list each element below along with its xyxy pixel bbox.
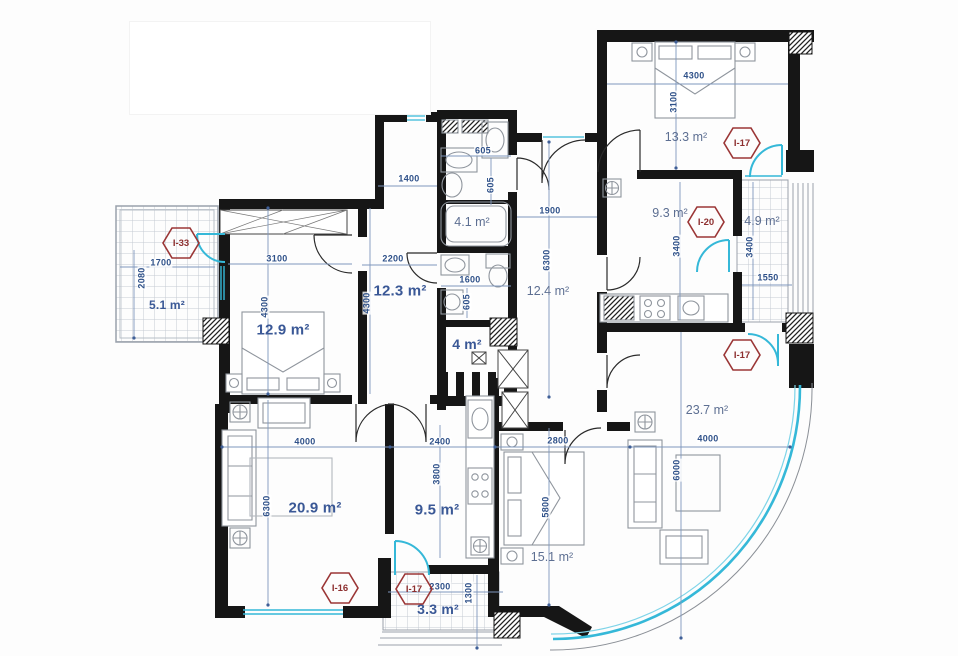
unit-marker: I-17: [722, 126, 762, 160]
room-label-kitchen-left: 9.5 m²: [415, 503, 460, 518]
room-label-bedroom-bottom: 15.1 m²: [531, 551, 573, 564]
dimension-label: 1400: [397, 175, 420, 184]
unit-marker: I-17: [394, 572, 434, 606]
unit-marker: I-20: [686, 205, 726, 239]
dimension-label: 4300: [261, 295, 270, 318]
dimension-label: 3400: [746, 235, 755, 258]
unit-marker: I-33: [161, 226, 201, 260]
room-label-living-right: 23.7 m²: [686, 404, 728, 417]
floor-plan: 5.1 m² 12.9 m² 12.3 m² 4.1 m² 4 m² 12.4 …: [0, 0, 958, 656]
dimension-label: 4300: [682, 72, 705, 81]
dimension-label: 1550: [756, 274, 779, 283]
room-label-storage: 4 m²: [452, 337, 482, 351]
unit-marker-label: I-16: [320, 571, 360, 605]
room-label-bedroom-left: 12.9 m²: [256, 323, 309, 338]
room-label-balcony-right: 4.9 m²: [744, 215, 779, 228]
dimension-label: 3100: [265, 255, 288, 264]
dimension-label: 1900: [538, 207, 561, 216]
unit-marker: I-17: [722, 338, 762, 372]
dimension-label: 6300: [263, 494, 272, 517]
unit-marker-label: I-20: [686, 205, 726, 239]
dimension-label: 5800: [542, 495, 551, 518]
room-label-hallway-right: 12.4 m²: [527, 285, 569, 298]
room-label-bedroom-top-right: 13.3 m²: [665, 131, 707, 144]
dimension-label: 6300: [543, 248, 552, 271]
dimension-label: 4300: [363, 291, 372, 314]
room-label-living-left: 20.9 m²: [288, 501, 341, 516]
dimension-label: 1300: [465, 581, 474, 604]
dimension-label: 2400: [428, 438, 451, 447]
unit-marker: I-16: [320, 571, 360, 605]
furniture-layer: [222, 42, 755, 564]
dimension-label: 1600: [458, 276, 481, 285]
unit-marker-label: I-17: [722, 126, 762, 160]
dimension-label: 2080: [138, 266, 147, 289]
dimension-label: 3400: [673, 234, 682, 257]
watermark-box: [130, 22, 430, 114]
unit-marker-label: I-33: [161, 226, 201, 260]
unit-marker-label: I-17: [722, 338, 762, 372]
room-label-kitchen-right: 9.3 m²: [652, 207, 687, 220]
dimension-label: 2200: [381, 255, 404, 264]
dimension-label: 605: [487, 176, 496, 194]
dimension-label: 2800: [546, 437, 569, 446]
dimension-label: 3800: [433, 462, 442, 485]
dimension-label: 605: [474, 147, 492, 156]
dimension-label: 6000: [673, 458, 682, 481]
dimension-label: 605: [463, 293, 472, 311]
unit-marker-label: I-17: [394, 572, 434, 606]
room-label-bathroom: 4.1 m²: [454, 216, 489, 229]
dimension-label: 3100: [670, 90, 679, 113]
dimension-label: 4000: [696, 435, 719, 444]
room-label-balcony-top-left: 5.1 m²: [149, 299, 185, 311]
dimension-label: 4000: [293, 438, 316, 447]
room-label-hallway-upper: 12.3 m²: [373, 284, 426, 299]
